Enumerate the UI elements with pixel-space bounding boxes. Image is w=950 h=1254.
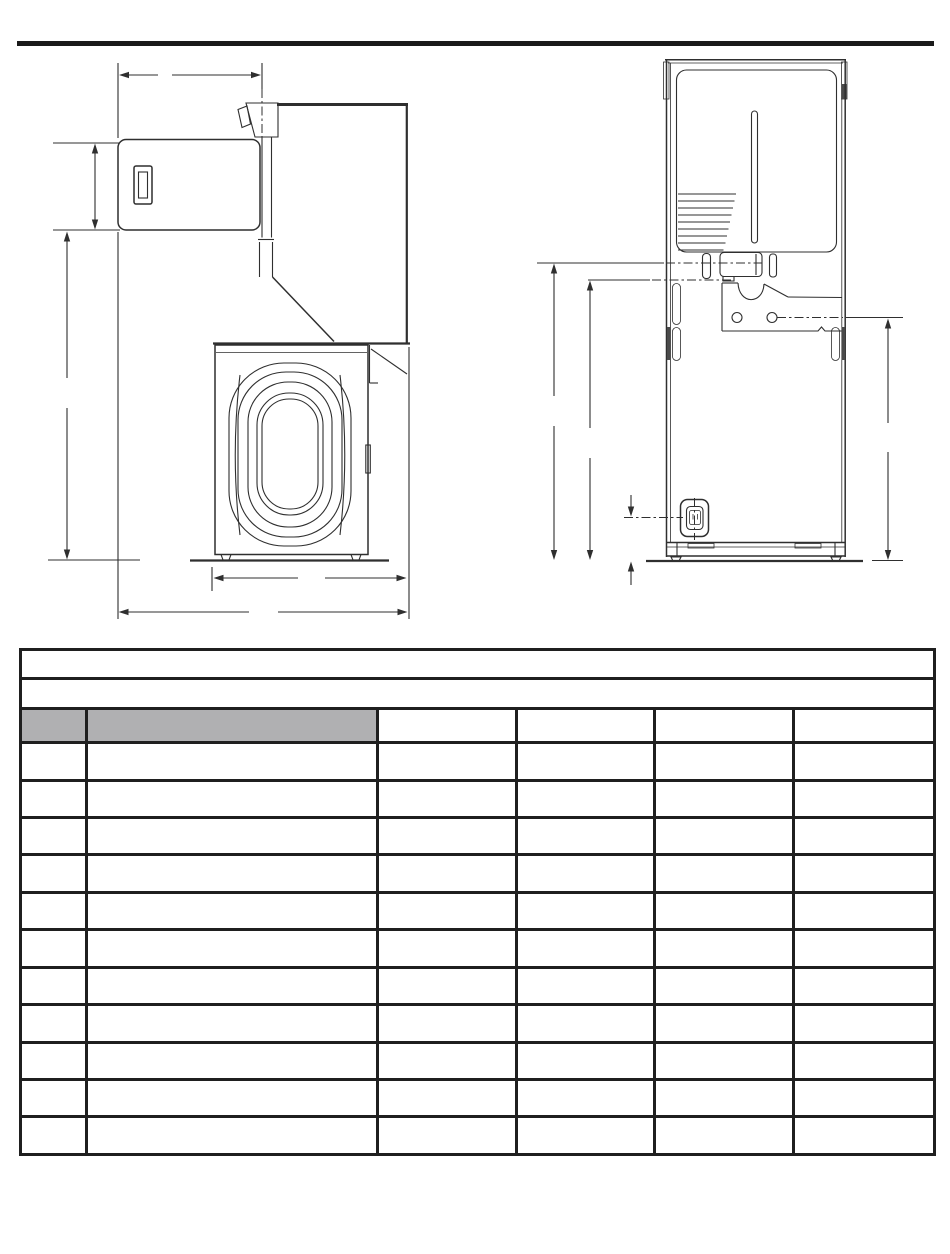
- table-cell: [378, 743, 517, 780]
- table-cell: [517, 1080, 655, 1117]
- side-view-dimension-lines: [48, 63, 409, 619]
- table-cell: [517, 855, 655, 892]
- table-cell: [517, 967, 655, 1004]
- table-cell: [794, 855, 935, 892]
- table-cell: [378, 1117, 517, 1155]
- table-cell: [87, 930, 378, 967]
- screw-hole: [732, 313, 742, 323]
- table-cell: [517, 743, 655, 780]
- dimensions-table-body: [21, 650, 935, 1155]
- table-cell: [21, 1005, 87, 1042]
- table-header-cell: [378, 708, 517, 742]
- table-title-row: [21, 679, 935, 708]
- rear-view-dimension-lines: [537, 263, 903, 585]
- rear-panel: [677, 70, 837, 252]
- table-cell: [378, 1005, 517, 1042]
- table-cell: [87, 1080, 378, 1117]
- table-cell: [378, 930, 517, 967]
- table-cell: [21, 817, 87, 854]
- table-cell: [21, 1042, 87, 1079]
- table-row: [21, 743, 935, 780]
- table-row: [21, 855, 935, 892]
- vent-cap-damper: [238, 106, 251, 128]
- table-cell: [378, 817, 517, 854]
- table-row: [21, 930, 935, 967]
- table-cell: [794, 743, 935, 780]
- table-cell: [378, 1042, 517, 1079]
- table-header-cell: [794, 708, 935, 742]
- table-cell: [794, 1117, 935, 1155]
- table-cell: [794, 817, 935, 854]
- table-cell: [655, 780, 794, 817]
- table-cell: [517, 930, 655, 967]
- table-cell: [655, 743, 794, 780]
- table-row: [21, 1117, 935, 1155]
- table-cell: [378, 1080, 517, 1117]
- table-cell: [794, 1042, 935, 1079]
- table-cell: [517, 892, 655, 929]
- table-header-cell: [655, 708, 794, 742]
- washer-door: [229, 363, 351, 546]
- table-cell: [21, 855, 87, 892]
- table-cell: [87, 855, 378, 892]
- control-console: [118, 140, 260, 231]
- support-diagonal: [273, 277, 335, 342]
- table-cell: [378, 967, 517, 1004]
- table-cell: [655, 930, 794, 967]
- table-row: [21, 780, 935, 817]
- table-row: [21, 817, 935, 854]
- table-title-cell: [21, 650, 935, 679]
- washer-foot: [351, 555, 361, 561]
- table-row: [21, 1005, 935, 1042]
- table-cell: [655, 1117, 794, 1155]
- table-title-row: [21, 650, 935, 679]
- table-cell: [655, 855, 794, 892]
- table-cell: [794, 780, 935, 817]
- table-cell: [378, 855, 517, 892]
- rear-panel-slot: [752, 111, 758, 243]
- table-title-cell: [21, 679, 935, 708]
- table-cell: [21, 930, 87, 967]
- cable-cutout: [738, 283, 764, 300]
- technical-drawings: [0, 0, 950, 645]
- side-flange-slots: [667, 284, 845, 361]
- table-header-cell: [517, 708, 655, 742]
- table-cell: [21, 892, 87, 929]
- table-cell: [517, 780, 655, 817]
- table-cell: [655, 817, 794, 854]
- rear-view-drawing: [537, 60, 903, 585]
- mid-bracket: [722, 283, 842, 331]
- table-cell: [21, 780, 87, 817]
- table-cell: [87, 780, 378, 817]
- table-cell: [794, 1005, 935, 1042]
- document-page: [0, 0, 950, 1254]
- table-cell: [794, 1080, 935, 1117]
- table-cell: [655, 1005, 794, 1042]
- table-cell: [87, 967, 378, 1004]
- table-cell: [87, 892, 378, 929]
- table-cell: [517, 817, 655, 854]
- table-cell: [21, 1080, 87, 1117]
- table-cell: [378, 780, 517, 817]
- table-cell: [21, 743, 87, 780]
- table-cell: [21, 1117, 87, 1155]
- table-cell: [655, 967, 794, 1004]
- table-row: [21, 1080, 935, 1117]
- water-connections: [703, 253, 777, 282]
- table-cell: [87, 743, 378, 780]
- vent-louvers: [678, 194, 736, 250]
- washer-foot: [221, 555, 231, 561]
- table-cell: [87, 1042, 378, 1079]
- table-header-row: [21, 708, 935, 742]
- table-cell: [655, 1042, 794, 1079]
- table-cell: [655, 1080, 794, 1117]
- table-header-cell: [21, 708, 87, 742]
- table-cell: [794, 967, 935, 1004]
- table-cell: [517, 1042, 655, 1079]
- base-rail: [667, 542, 845, 561]
- cabinet-outline: [664, 60, 848, 557]
- table-cell: [517, 1117, 655, 1155]
- table-cell: [794, 930, 935, 967]
- table-cell: [21, 967, 87, 1004]
- table-row: [21, 1042, 935, 1079]
- table-header-cell: [87, 708, 378, 742]
- table-cell: [794, 892, 935, 929]
- table-cell: [87, 1117, 378, 1155]
- side-view-drawing: [48, 63, 410, 619]
- dimensions-table: [19, 648, 936, 1156]
- table-cell: [378, 892, 517, 929]
- table-cell: [655, 892, 794, 929]
- screw-hole: [767, 313, 777, 323]
- table-row: [21, 967, 935, 1004]
- dryer-cabinet: [238, 103, 408, 383]
- table-row: [21, 892, 935, 929]
- table-cell: [87, 1005, 378, 1042]
- table-cell: [87, 817, 378, 854]
- table-cell: [517, 1005, 655, 1042]
